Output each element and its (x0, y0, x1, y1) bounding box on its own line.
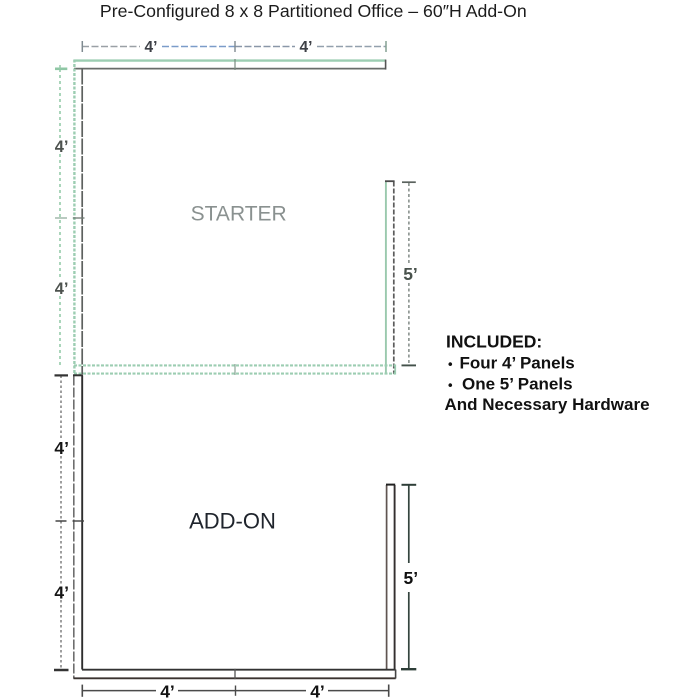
svg-text:4’: 4’ (55, 280, 69, 298)
svg-text:Four 4’ Panels: Four 4’ Panels (460, 354, 575, 373)
svg-text:INCLUDED:: INCLUDED: (446, 332, 542, 352)
svg-text:4’: 4’ (55, 138, 69, 156)
svg-text:One 5’ Panels: One 5’ Panels (462, 374, 573, 393)
svg-text:•: • (448, 377, 453, 392)
svg-text:STARTER: STARTER (191, 203, 287, 226)
svg-text:4’: 4’ (145, 39, 158, 56)
svg-text:ADD-ON: ADD-ON (189, 509, 276, 534)
svg-text:4’: 4’ (160, 682, 175, 700)
svg-text:5’: 5’ (403, 264, 418, 284)
svg-text:•: • (448, 357, 453, 372)
svg-text:4’: 4’ (54, 583, 69, 603)
svg-text:4’: 4’ (310, 682, 325, 700)
svg-text:4’: 4’ (54, 438, 69, 458)
svg-text:And Necessary Hardware: And Necessary Hardware (445, 395, 650, 414)
svg-text:4’: 4’ (300, 39, 313, 56)
svg-text:Pre-Configured 8 x 8 Partition: Pre-Configured 8 x 8 Partitioned Office … (100, 1, 527, 21)
svg-text:5’: 5’ (403, 568, 418, 588)
